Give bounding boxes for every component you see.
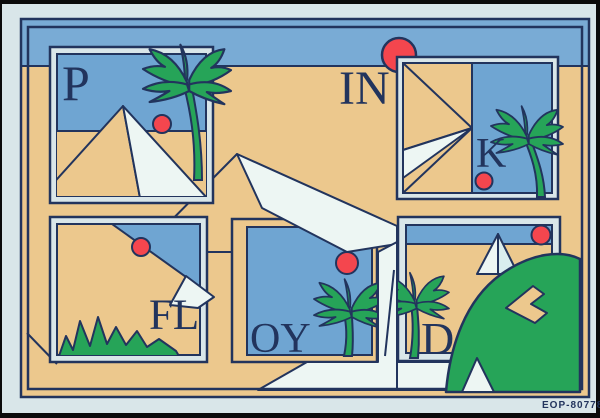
letter-in: IN [339,62,390,115]
letter-fl: FL [149,292,199,339]
letter-oy: OY [250,316,311,362]
panel-oy-sun [336,252,358,274]
panel-k: K [397,57,563,199]
letter-p: P [62,55,90,111]
panel-d-sky-strip [406,225,552,244]
photo-frame: IN P [0,0,600,418]
panel-d-sun [532,226,551,245]
panel-p: P [40,45,231,203]
letter-k: K [476,131,506,177]
letter-d: D [421,313,454,364]
panel-fl: FL [50,217,214,362]
panel-p-sun [153,115,171,133]
panel-k-sand-half [403,63,472,193]
print-code: EOP-80778 [542,400,600,411]
artwork-canvas: IN P [0,0,600,418]
panel-fl-sun [132,238,150,256]
